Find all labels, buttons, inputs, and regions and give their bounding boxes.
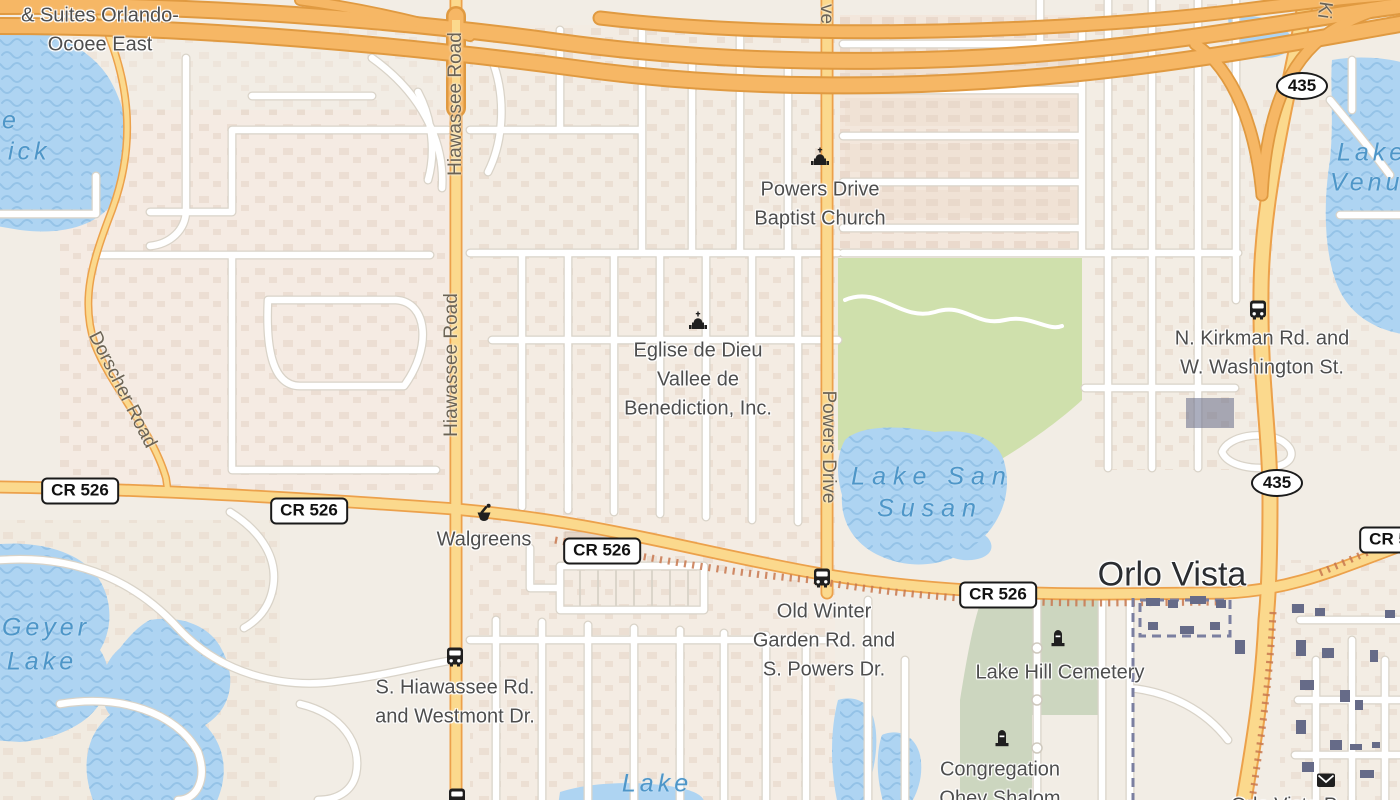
poi-label: Orlo Vista P [1231, 795, 1337, 800]
street-name-label: Ki [1312, 0, 1336, 20]
street-name-label: Dorscher Road [83, 328, 161, 452]
poi-label: Ocoee East [48, 34, 153, 57]
poi-label: Baptist Church [754, 208, 885, 231]
poi-label: & Suites Orlando- [21, 5, 179, 28]
church-icon[interactable] [686, 310, 710, 334]
poi-label: Congregation [940, 759, 1060, 782]
water-body-label: Lake [7, 648, 77, 677]
poi-label: S. Hiawassee Rd. [376, 677, 535, 700]
bus-icon[interactable] [1246, 298, 1270, 322]
street-name-label: Powers Drive [817, 391, 839, 504]
route-shield-cr526: CR 526 [1359, 527, 1400, 554]
route-shield-cr526: CR 526 [959, 582, 1037, 609]
poi-label: Powers Drive [761, 179, 880, 202]
water-body-label: Lake [622, 770, 692, 799]
route-shield-cr526: CR 526 [270, 498, 348, 525]
poi-label: Lake Hill Cemetery [976, 662, 1145, 685]
mail-icon[interactable] [1314, 768, 1338, 792]
water-body-label: Susan [877, 495, 983, 524]
grave-icon[interactable] [1046, 628, 1070, 652]
water-body-label: e [2, 107, 20, 136]
water-body-label: Lake [1337, 139, 1400, 168]
pharmacy-icon[interactable] [472, 501, 496, 525]
poi-label: Vallee de [657, 369, 739, 392]
route-shield-435: 435 [1251, 469, 1303, 497]
water-body-label: Venus [1330, 169, 1400, 198]
street-name-label: Hiawassee Road [441, 293, 463, 437]
poi-label: Old Winter [777, 601, 871, 624]
poi-label: Benediction, Inc. [624, 398, 772, 421]
water-body-label: Geyer [2, 614, 90, 643]
route-shield-cr526: CR 526 [563, 538, 641, 565]
bus-icon[interactable] [445, 786, 469, 800]
map-viewport[interactable]: Holiday Inn Express& Suites Orlando-Ocoe… [0, 0, 1400, 800]
poi-label: Walgreens [437, 529, 532, 552]
poi-label: Eglise de Dieu [634, 340, 763, 363]
city-label-orlo-vista: Orlo Vista [1098, 556, 1247, 595]
church-icon[interactable] [808, 146, 832, 170]
poi-label: W. Washington St. [1180, 357, 1344, 380]
poi-label: Ohev Shalom [939, 788, 1060, 800]
poi-label: and Westmont Dr. [375, 706, 535, 729]
poi-label: S. Powers Dr. [763, 659, 885, 682]
water-body-label: Lake San [851, 463, 1013, 492]
route-shield-cr526: CR 526 [41, 478, 119, 505]
bus-icon[interactable] [810, 566, 834, 590]
bus-icon[interactable] [443, 645, 467, 669]
map-labels-layer: Holiday Inn Express& Suites Orlando-Ocoe… [0, 0, 1400, 800]
poi-label: N. Kirkman Rd. and [1175, 328, 1350, 351]
grave-icon[interactable] [990, 728, 1014, 752]
poi-label: Garden Rd. and [753, 630, 895, 653]
route-shield-435: 435 [1276, 72, 1328, 100]
street-name-label: ve [815, 4, 837, 24]
water-body-label: ick [8, 138, 51, 167]
street-name-label: Hiawassee Road [445, 32, 467, 176]
